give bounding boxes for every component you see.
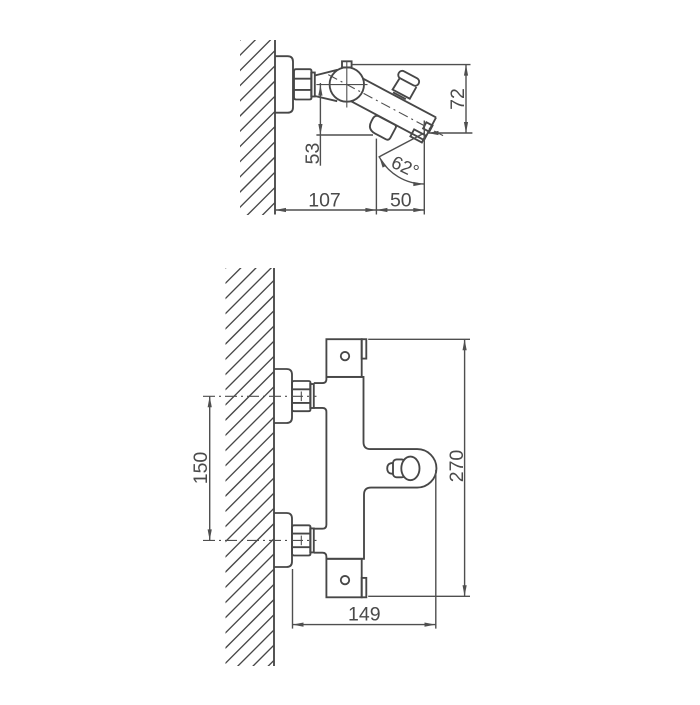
svg-text:72: 72 [447, 88, 469, 110]
svg-text:50: 50 [390, 190, 412, 212]
svg-text:149: 149 [348, 604, 381, 626]
svg-text:270: 270 [446, 450, 468, 483]
svg-text:107: 107 [308, 190, 341, 212]
svg-text:150: 150 [190, 452, 212, 485]
svg-text:53: 53 [302, 143, 324, 165]
